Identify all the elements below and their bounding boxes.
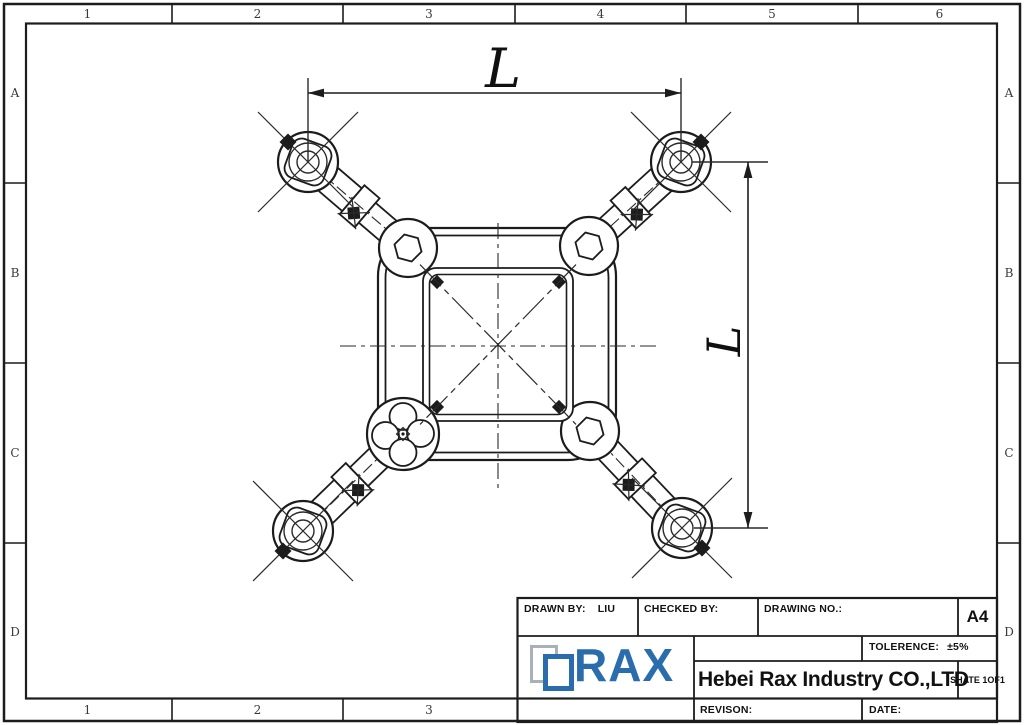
zone-label-right-c: C <box>997 363 1021 543</box>
zone-label-top-2: 2 <box>172 4 343 23</box>
zone-label-top-1: 1 <box>3 4 172 23</box>
drawing-sheet: 1 2 3 4 5 6 1 2 3 A B C D A B C D L L DR… <box>0 0 1024 725</box>
arrow-left-icon <box>308 89 324 98</box>
logo-text: RAX <box>574 640 674 690</box>
zone-label-top-4: 4 <box>515 4 686 23</box>
drawn-by-cell: DRAWN BY:LIU <box>524 603 615 615</box>
tolerance-label: TOLERENCE: <box>869 641 939 653</box>
arrow-right-icon <box>665 89 681 98</box>
zone-label-left-d: D <box>4 543 26 721</box>
date-label: DATE: <box>869 704 901 716</box>
drawing-no-label: DRAWING NO.: <box>764 603 842 615</box>
arrow-up-icon <box>744 162 753 178</box>
tolerance-value: ±5% <box>947 641 969 653</box>
dimension-label-height: L <box>696 311 752 371</box>
checked-by-label: CHECKED BY: <box>644 603 718 615</box>
zone-label-right-a: A <box>997 3 1021 183</box>
zone-label-bottom-3: 3 <box>343 699 515 720</box>
logo-square-front-icon <box>543 654 574 691</box>
zone-label-left-c: C <box>4 363 26 543</box>
revision-label: REVISON: <box>700 704 752 716</box>
quad-clamp-cluster <box>367 398 439 470</box>
paper-size: A4 <box>958 598 997 636</box>
zone-label-right-b: B <box>997 183 1021 363</box>
zone-label-right-d: D <box>997 543 1021 721</box>
zone-label-left-a: A <box>4 3 26 183</box>
zone-label-bottom-1: 1 <box>3 699 172 720</box>
clamp-head-bottom-left <box>253 481 353 581</box>
sheet-number: SHATE 1OF1 <box>958 661 997 698</box>
engineering-drawing <box>0 0 1024 725</box>
drawn-by-label: DRAWN BY: <box>524 603 586 615</box>
drawn-by-value: LIU <box>598 603 616 615</box>
dimension-label-width: L <box>473 40 533 98</box>
zone-label-bottom-2: 2 <box>172 699 343 720</box>
arrow-down-icon <box>744 512 753 528</box>
zone-label-top-3: 3 <box>343 4 515 23</box>
zone-label-top-5: 5 <box>686 4 858 23</box>
tolerance-cell: TOLERENCE:±5% <box>869 641 969 653</box>
zone-label-left-b: B <box>4 183 26 363</box>
company-name: Hebei Rax Industry CO.,LTD <box>698 661 956 698</box>
